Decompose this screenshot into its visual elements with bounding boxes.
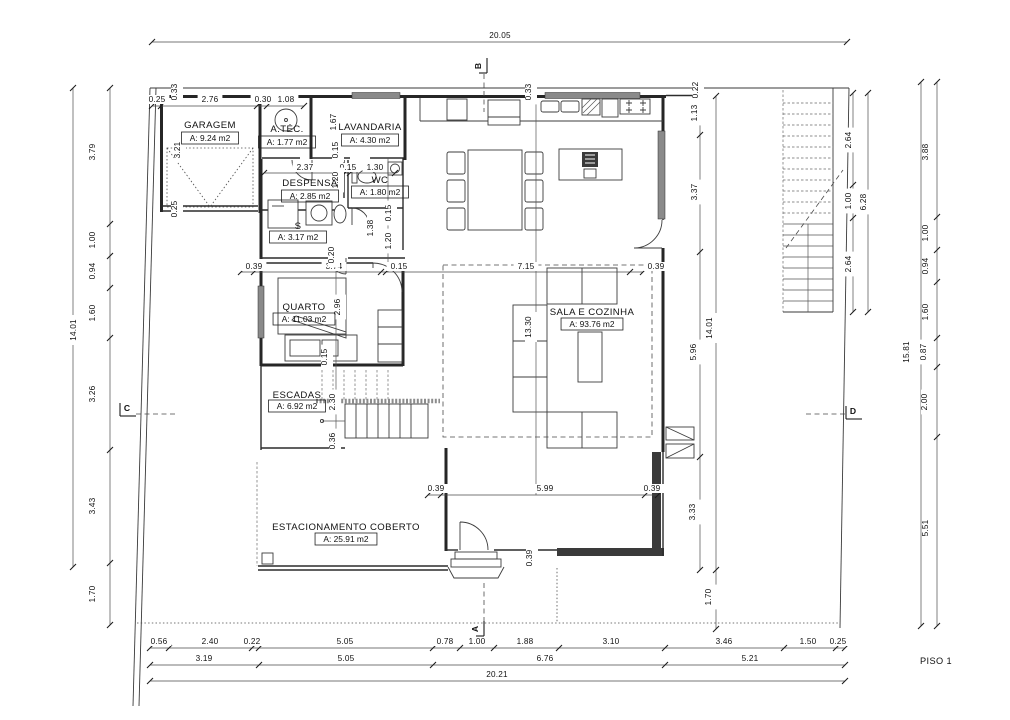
room-name: GARAGEM [184,120,236,131]
sink-basin [541,101,559,112]
dimension-label: 3.46 [716,637,733,646]
dimension-label: 1.70 [704,588,713,605]
sink-basin [561,101,579,112]
section-marker: C [124,403,130,413]
dimension-label: 1.13 [690,104,699,121]
dimension-label: 5.05 [338,654,355,663]
floor-plan-page: 20.050.330.252.760.301.083.210.251.670.3… [0,0,1010,720]
washbasin [334,205,346,223]
dimension-label: 0.94 [88,262,97,279]
dimension-label: 0.33 [524,83,533,100]
dimension-label: 0.33 [170,83,179,100]
dimension-label: 1.70 [88,585,97,602]
dimension-label: 0.15 [331,141,340,158]
dimension-label: 1.00 [469,637,486,646]
dimension-label: 1.67 [329,113,338,130]
dimension-label: 0.39 [525,549,534,566]
dimension-label: 0.25 [830,637,847,646]
room-area: A: 2.85 m2 [290,191,331,201]
dimension-label: 0.22 [244,637,261,646]
labels: 20.050.330.252.760.301.083.210.251.670.3… [69,31,934,679]
dimension-label: 3.79 [88,143,97,160]
section-marker: A [470,626,480,632]
dimension-label: 0.25 [170,200,179,217]
dimension-label: 1.00 [921,224,930,241]
dining-table [468,150,522,230]
chair [447,208,465,230]
dimension-label: 1.20 [384,232,393,249]
room-area: A: 93.76 m2 [569,319,615,329]
dimension-label: 0.94 [921,257,930,274]
stove [620,99,650,114]
dimension-label: 5.96 [689,343,698,360]
dimension-label: 2.76 [202,95,219,104]
floor-label: PISO 1 [920,656,952,666]
chair [525,208,543,230]
washing-machine [268,200,298,228]
room-area: A: 11.03 m2 [282,314,327,324]
dimension-label: 0.39 [428,484,445,493]
dimension-label: 0.39 [246,262,263,271]
dimension-label: 20.05 [489,31,511,40]
dimension-label: 20.21 [486,670,508,679]
room-name: A.TÉC. [270,124,303,135]
external-stairs [783,88,843,312]
room-area: A: 1.80 m2 [360,187,401,197]
room-area: A: 4.30 m2 [350,135,391,145]
sink-drainer [582,99,600,115]
room-name: S [295,221,302,232]
room-area: A: 9.24 m2 [190,133,231,143]
dimension-label: 1.60 [921,303,930,320]
dimension-label: 3.19 [196,654,213,663]
dimension-label: 1.00 [88,231,97,248]
room-area: A: 25.91 m2 [323,534,369,544]
dimension-label: 14.01 [69,319,78,341]
room-name: ESCADAS [273,390,322,401]
section-marker: B [473,63,483,69]
dimension-label: 1.88 [517,637,534,646]
dimension-label: 7.15 [518,262,535,271]
dimension-label: 1.50 [800,637,817,646]
section-marker: D [850,406,856,416]
fridge [488,100,520,125]
wardrobe [378,310,402,362]
kitchen-island [559,149,622,180]
dimension-label: 3.37 [690,183,699,200]
dimension-label: 0.36 [328,432,337,449]
cabinet [447,99,467,120]
dimension-label: 0.56 [151,637,168,646]
dimension-label: 0.15 [391,262,408,271]
dining-set [447,150,543,230]
room-name: SALA E COZINHA [550,307,635,318]
room-name: ESTACIONAMENTO COBERTO [272,522,420,533]
dimension-label: 0.39 [648,262,665,271]
dimension-label: 1.00 [844,192,853,209]
dimension-label: 0.30 [255,95,272,104]
chair [447,180,465,202]
dimension-label: 0.87 [919,343,928,360]
dimension-label: 2.30 [328,393,337,410]
dimension-label: 2.64 [844,131,853,148]
dimension-label: 3.33 [688,503,697,520]
dimension-label: 5.99 [537,484,554,493]
dimension-label: 1.38 [366,219,375,236]
dimension-label: 1.60 [88,304,97,321]
dimension-label: 0.20 [327,246,336,263]
room-area: A: 6.92 m2 [277,401,318,411]
chair [447,152,465,174]
coffee-table [578,332,602,382]
room-area: A: 3.17 m2 [278,232,319,242]
dimension-label: 6.76 [537,654,554,663]
room-name: WC [372,175,389,186]
chair [525,152,543,174]
dimension-label: 0.78 [437,637,454,646]
dimension-label: 0.25 [149,95,166,104]
dimension-label: 6.28 [859,193,868,210]
window-quarto-west [258,286,264,338]
room-name: LAVANDARIA [338,122,402,133]
dimension-label: 13.30 [524,316,533,338]
dimension-label: 0.15 [320,348,329,365]
floor-plan-canvas: 20.050.330.252.760.301.083.210.251.670.3… [0,0,1010,720]
room-area: A: 1.77 m2 [267,137,308,147]
dimension-label: 14.01 [705,317,714,339]
dimension-label: 3.88 [921,143,930,160]
dimension-label: 3.21 [173,141,182,158]
room-name: DESPENSA [282,178,338,189]
living-set [513,268,617,448]
dimension-label: 0.15 [384,204,393,221]
dimension-label: 3.26 [88,385,97,402]
dimension-label: 0.22 [691,81,700,98]
dimension-label: 1.08 [278,95,295,104]
dimension-label: 0.39 [644,484,661,493]
dimension-label: 3.43 [88,497,97,514]
dimension-label: 2.00 [920,393,929,410]
dimension-label: 5.21 [742,654,759,663]
walls [160,88,703,570]
window-lavandaria-north [352,93,400,99]
door-east-entrance [634,220,662,248]
window-kitchen-north [545,93,640,99]
window-east [658,131,665,219]
dimension-label: 5.05 [337,637,354,646]
dimension-label: 5.51 [921,519,930,536]
room-name: QUARTO [282,302,325,313]
dimension-label: 2.40 [202,637,219,646]
dimension-label: 3.10 [603,637,620,646]
dimension-label: 2.37 [297,163,314,172]
chair [525,180,543,202]
dimension-label: 1.30 [367,163,384,172]
door-main-entrance [460,522,488,550]
dimension-label: 2.64 [844,255,853,272]
dimension-label: 15.81 [902,341,911,363]
